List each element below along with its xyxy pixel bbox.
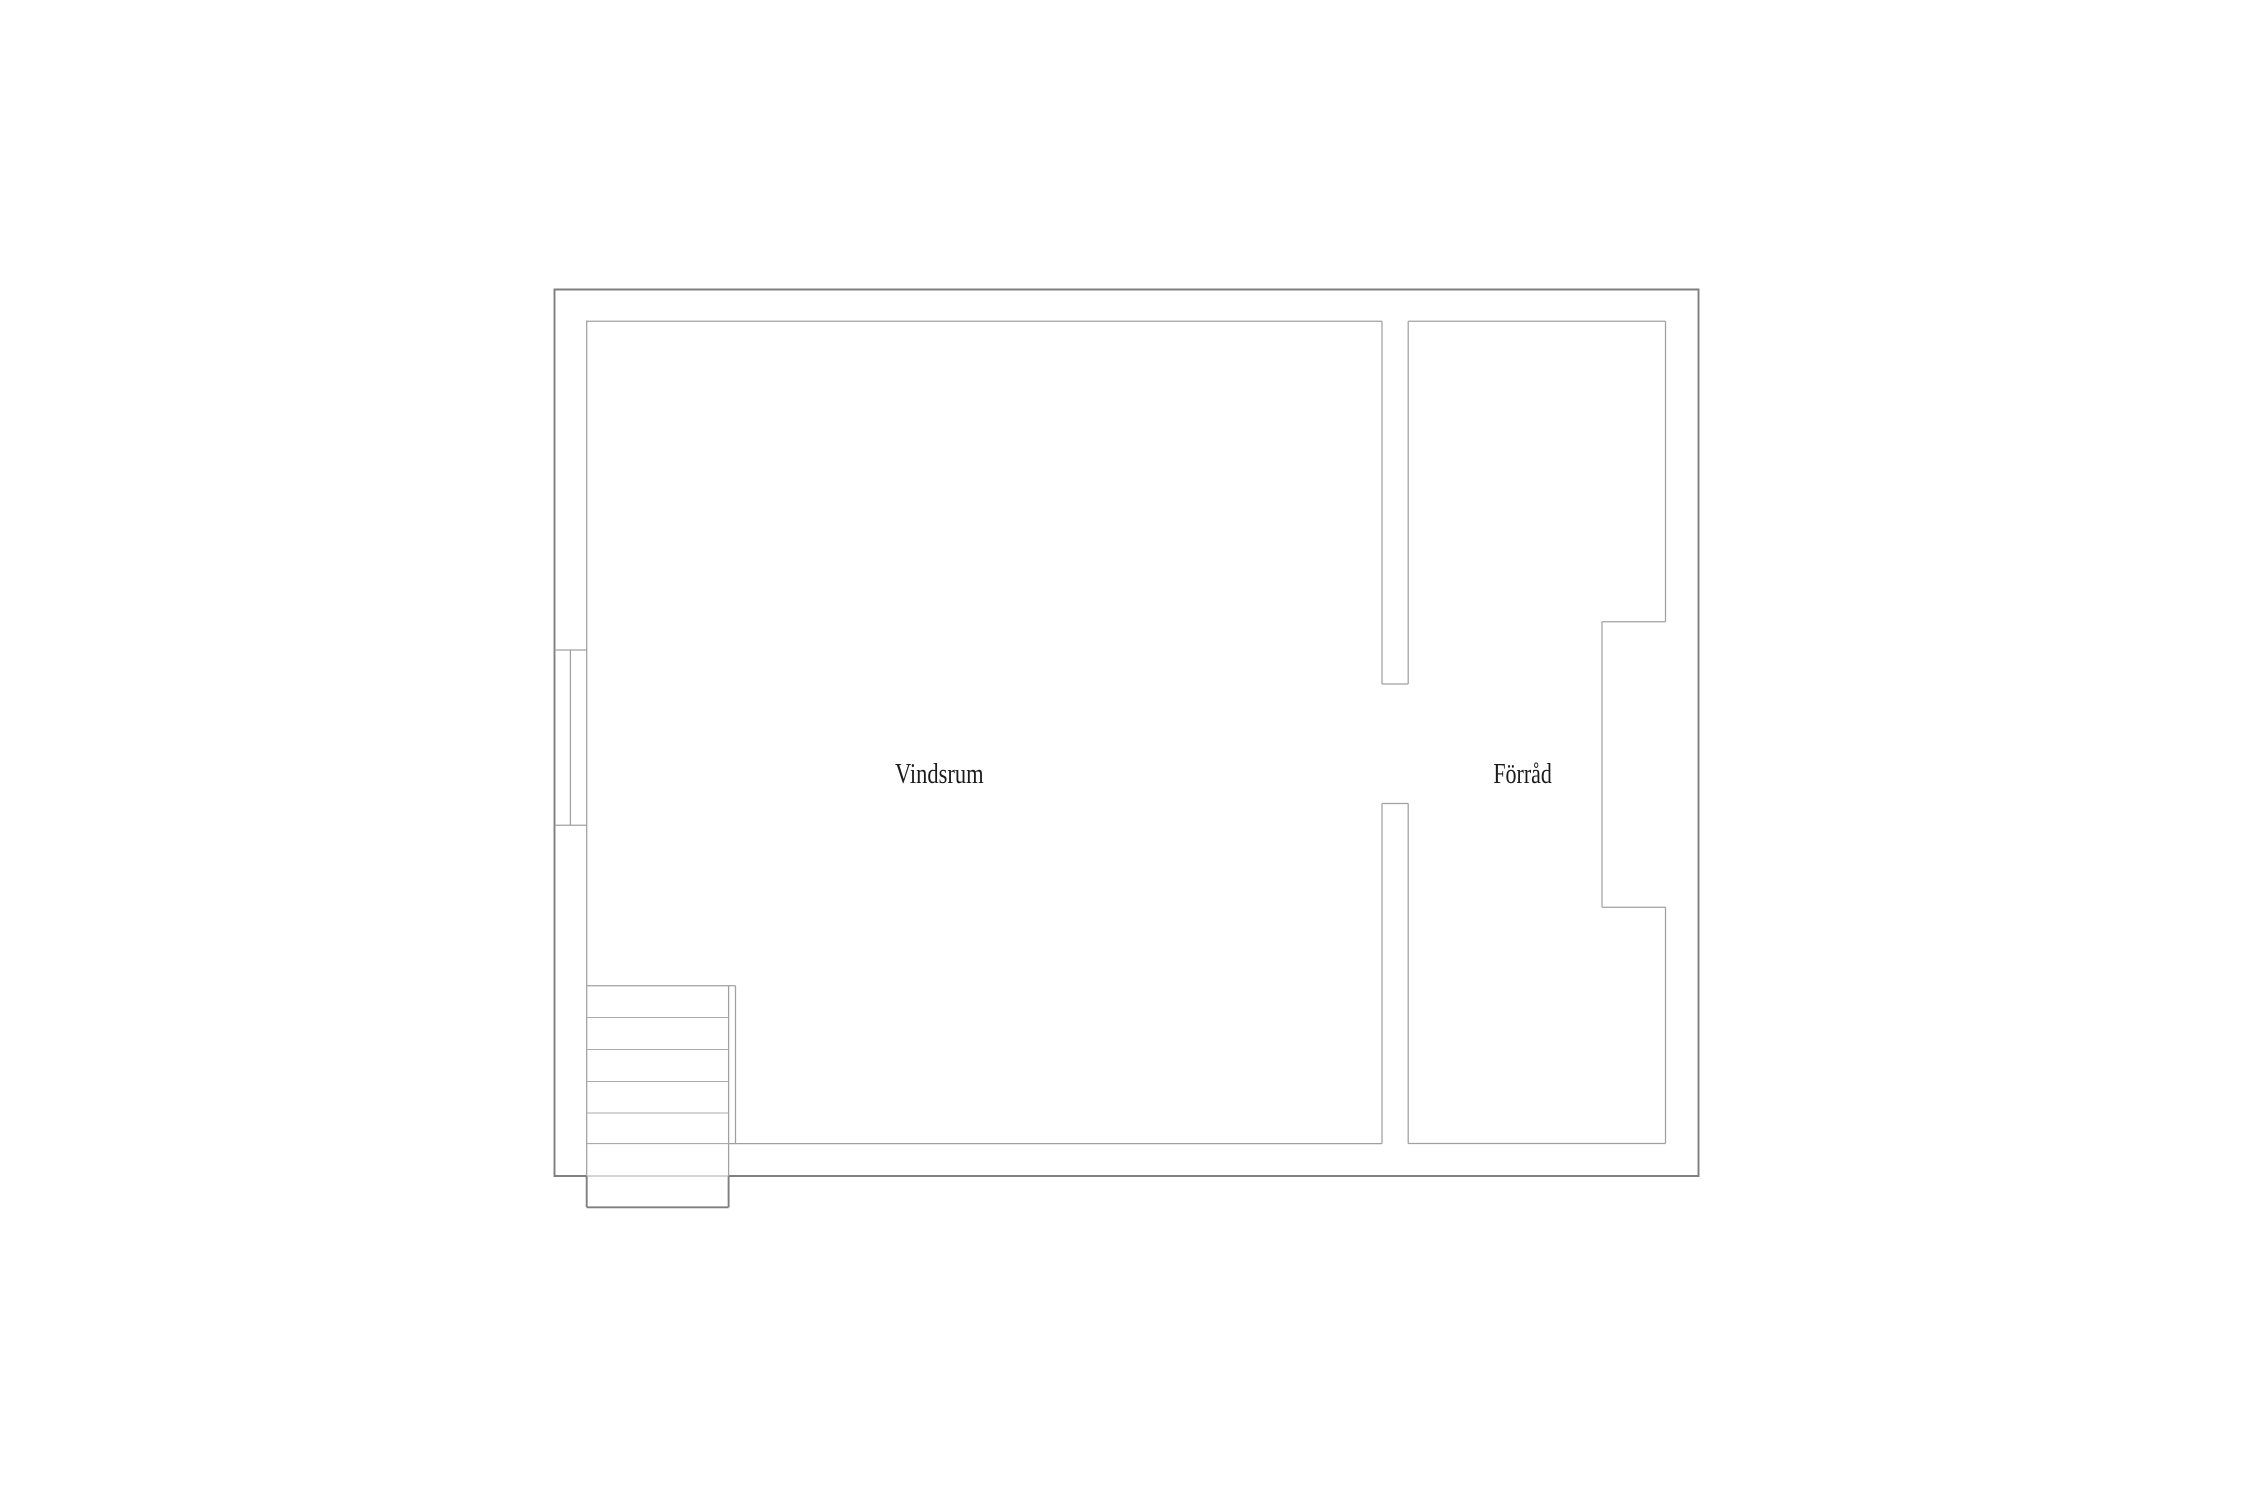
svg-text:Vindsrum: Vindsrum: [895, 759, 984, 790]
svg-text:Förråd: Förråd: [1493, 759, 1552, 790]
